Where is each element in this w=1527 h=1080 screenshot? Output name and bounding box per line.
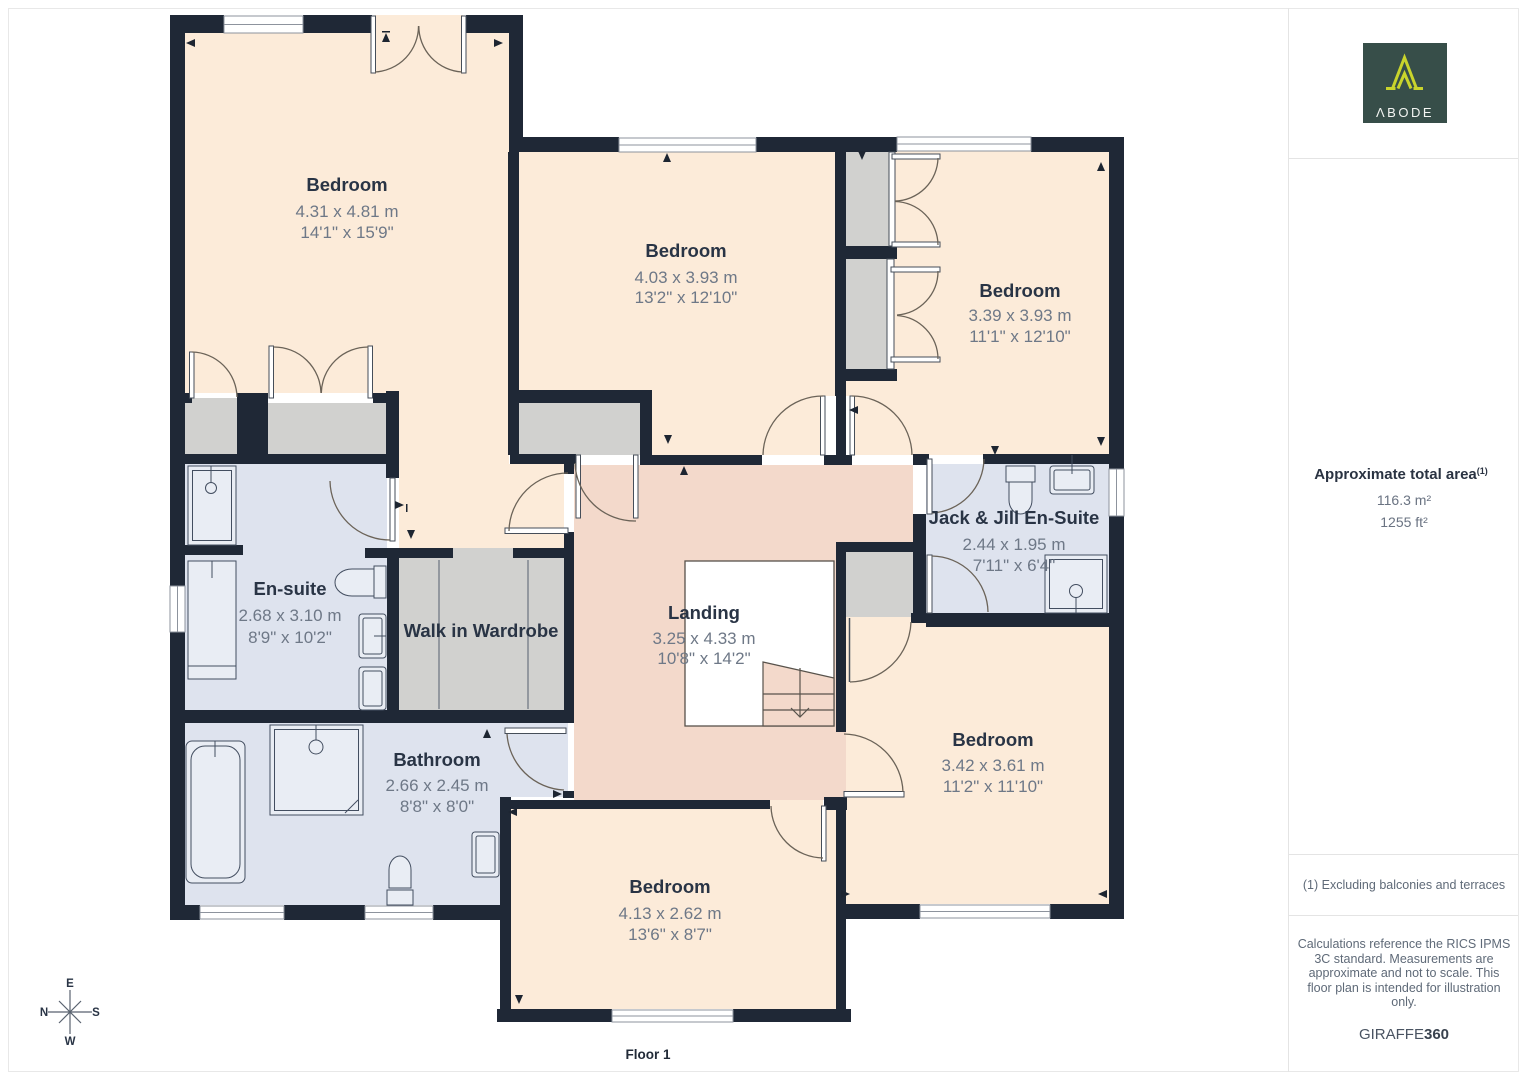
svg-text:116.3 m²: 116.3 m² [1377, 492, 1432, 508]
svg-text:4.03 x 3.93 m: 4.03 x 3.93 m [634, 268, 737, 287]
svg-text:Calculations reference the RIC: Calculations reference the RICS IPMS [1298, 937, 1511, 951]
svg-text:S: S [92, 1007, 100, 1019]
svg-text:2.68 x 3.10 m: 2.68 x 3.10 m [238, 606, 341, 625]
svg-text:4.31 x 4.81 m: 4.31 x 4.81 m [295, 202, 398, 221]
svg-text:7'11" x 6'4": 7'11" x 6'4" [973, 556, 1056, 575]
svg-text:only.: only. [1391, 995, 1416, 1009]
svg-text:Landing: Landing [668, 602, 740, 623]
svg-text:3.42 x 3.61 m: 3.42 x 3.61 m [941, 756, 1044, 775]
svg-text:ΛBODE: ΛBODE [1376, 105, 1434, 120]
svg-text:11'2" x 11'10": 11'2" x 11'10" [943, 777, 1043, 796]
svg-text:1255 ft²: 1255 ft² [1380, 514, 1428, 530]
svg-text:8'8" x 8'0": 8'8" x 8'0" [400, 797, 474, 816]
svg-text:Bathroom: Bathroom [393, 749, 480, 770]
svg-text:W: W [65, 1036, 76, 1048]
svg-text:Walk in Wardrobe: Walk in Wardrobe [404, 620, 559, 641]
svg-text:Bedroom: Bedroom [629, 876, 710, 897]
svg-text:floor plan is intended for ill: floor plan is intended for illustration [1307, 981, 1500, 995]
svg-text:Bedroom: Bedroom [645, 240, 726, 261]
svg-text:13'6" x 8'7": 13'6" x 8'7" [628, 925, 712, 944]
svg-text:3C standard. Measurements are: 3C standard. Measurements are [1314, 952, 1493, 966]
svg-text:3.25 x 4.33 m: 3.25 x 4.33 m [652, 629, 755, 648]
svg-text:8'9" x 10'2": 8'9" x 10'2" [248, 628, 332, 647]
svg-text:2.44 x 1.95 m: 2.44 x 1.95 m [962, 535, 1065, 554]
svg-text:GIRAFFE360: GIRAFFE360 [1359, 1026, 1449, 1043]
svg-text:10'8" x 14'2": 10'8" x 14'2" [657, 649, 750, 668]
svg-text:4.13 x 2.62 m: 4.13 x 2.62 m [618, 904, 721, 923]
svg-text:Bedroom: Bedroom [952, 729, 1033, 750]
svg-text:Bedroom: Bedroom [979, 280, 1060, 301]
svg-text:(1) Excluding balconies and te: (1) Excluding balconies and terraces [1303, 878, 1505, 892]
svg-text:Floor 1: Floor 1 [625, 1047, 670, 1062]
svg-text:14'1" x 15'9": 14'1" x 15'9" [300, 223, 393, 242]
svg-text:13'2" x 12'10": 13'2" x 12'10" [635, 288, 738, 307]
svg-text:Jack & Jill En-Suite: Jack & Jill En-Suite [929, 507, 1100, 528]
svg-text:E: E [66, 978, 74, 990]
svg-text:En-suite: En-suite [254, 578, 327, 599]
svg-text:Bedroom: Bedroom [306, 174, 387, 195]
svg-text:approximate and not to scale.: approximate and not to scale. This [1309, 966, 1500, 980]
svg-text:2.66 x 2.45 m: 2.66 x 2.45 m [385, 776, 488, 795]
svg-text:Approximate total area(1): Approximate total area(1) [1314, 466, 1488, 483]
svg-text:N: N [40, 1007, 48, 1019]
svg-text:3.39 x 3.93 m: 3.39 x 3.93 m [968, 306, 1071, 325]
svg-text:11'1" x 12'10": 11'1" x 12'10" [969, 327, 1070, 346]
